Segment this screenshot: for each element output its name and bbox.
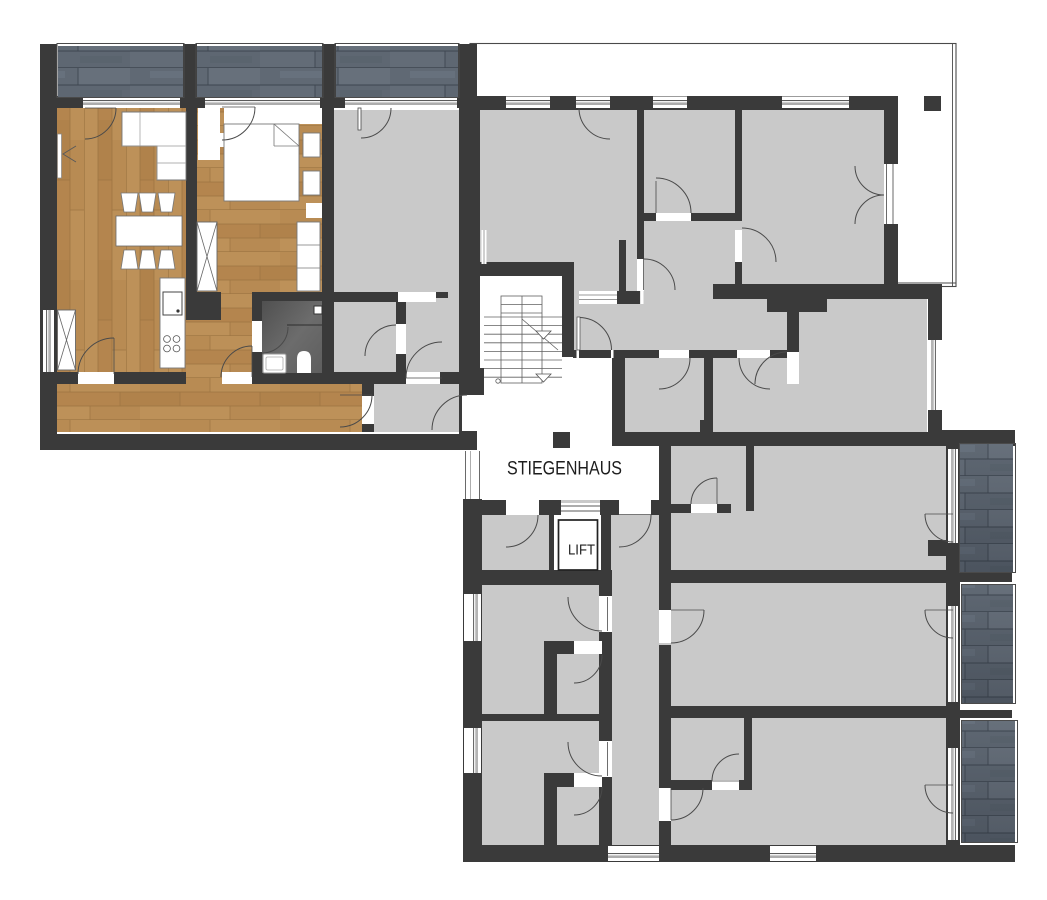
svg-text:LIFT: LIFT xyxy=(568,543,595,559)
svg-text:STIEGENHAUS: STIEGENHAUS xyxy=(507,459,622,480)
